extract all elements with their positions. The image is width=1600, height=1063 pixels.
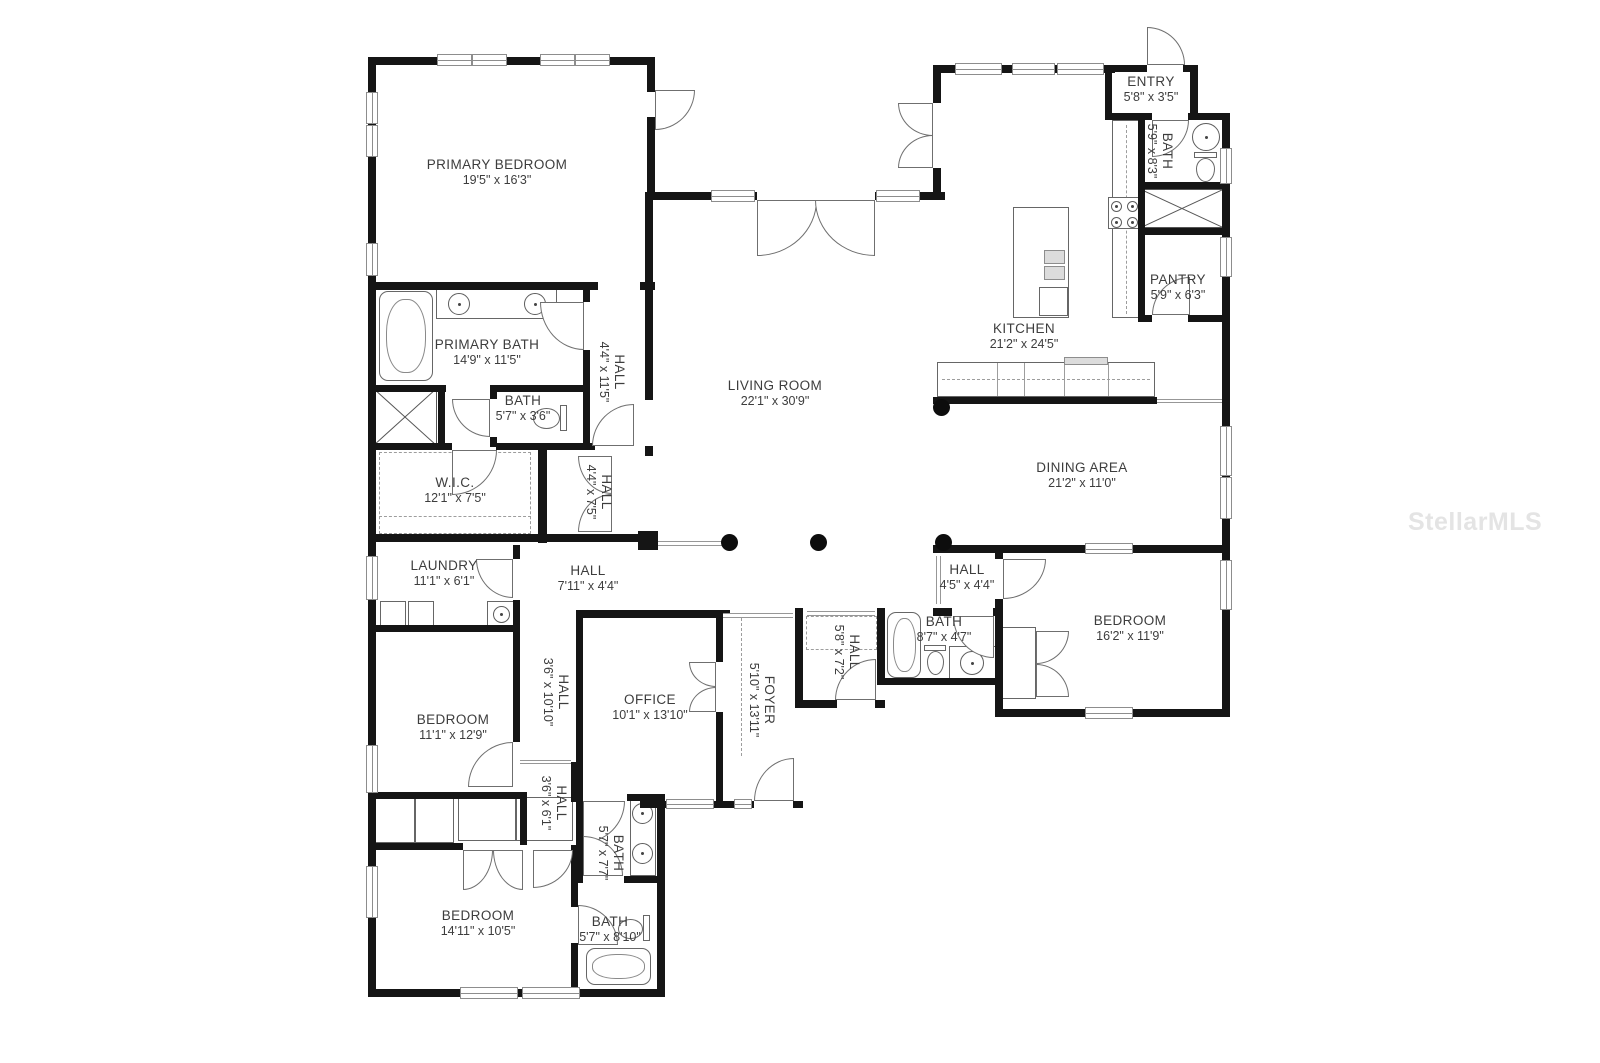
door-swing: [754, 758, 794, 801]
bathtub-bath5-basin: [893, 618, 916, 672]
room-dimensions: 4'4" x 7'5": [584, 465, 598, 520]
toilet-bowl-bath4: [1196, 158, 1215, 182]
window: [1220, 477, 1232, 519]
door-swing: [463, 850, 493, 890]
closet-foyer: [741, 618, 743, 756]
wall: [1188, 113, 1197, 120]
closet-bedroom2-a: [458, 797, 516, 841]
utility-sink: [493, 606, 510, 623]
room-dimensions: 11'1" x 6'1": [410, 574, 477, 588]
closet-bedroom1-b: [415, 797, 454, 843]
opening-threshold: [520, 760, 571, 764]
room-label-laundry: LAUNDRY11'1" x 6'1": [410, 558, 477, 588]
wall: [513, 610, 520, 742]
window: [460, 987, 518, 999]
room-label-hall-g: HALL4'5" x 4'4": [940, 562, 995, 592]
room-dimensions: 7'11" x 4'4": [558, 579, 619, 593]
opening-threshold: [723, 613, 793, 618]
room-label-bedroom-1: BEDROOM11'1" x 12'9": [417, 712, 490, 742]
kitchen-sink: [1064, 357, 1108, 365]
wall: [1188, 315, 1230, 322]
watermark: StellarMLS: [1408, 508, 1542, 537]
room-label-pantry: PANTRY5'9" x 6'3": [1150, 272, 1206, 302]
sink-bath2-2: [632, 843, 653, 864]
room-name: KITCHEN: [990, 321, 1059, 336]
room-name: BEDROOM: [441, 908, 516, 923]
room-label-hall-e: HALL5'8" x 7'2": [832, 625, 862, 680]
window: [1085, 707, 1133, 719]
window: [366, 556, 378, 600]
column: [933, 399, 950, 416]
window: [666, 799, 714, 809]
wall: [1138, 120, 1145, 322]
closet-bedroom3: [1002, 627, 1036, 699]
room-name: BATH: [579, 914, 641, 929]
wall: [645, 192, 653, 400]
wall: [368, 385, 446, 392]
door-swing: [540, 302, 584, 350]
room-dimensions: 11'1" x 12'9": [417, 728, 490, 742]
island-cabinet: [1039, 287, 1068, 316]
wall: [624, 876, 657, 883]
room-name: HALL: [612, 342, 627, 403]
room-name: HALL: [554, 776, 569, 831]
wall: [583, 282, 590, 302]
door-swing: [1036, 631, 1069, 664]
room-name: HALL: [558, 563, 619, 578]
wall: [520, 792, 527, 845]
wall: [716, 610, 723, 662]
window: [366, 745, 378, 793]
wall: [793, 801, 803, 808]
room-name: BATH: [611, 826, 626, 881]
room-label-bath-3: BATH5'7" x 8'10": [579, 914, 641, 944]
room-label-hall-c: HALL7'11" x 4'4": [558, 563, 619, 593]
wall: [368, 443, 452, 450]
room-dimensions: 8'7" x 4'7": [917, 630, 972, 644]
room-dimensions: 4'5" x 4'4": [940, 578, 995, 592]
room-dimensions: 5'8" x 3'5": [1124, 90, 1179, 104]
toilet-tank-hall-bath: [560, 405, 567, 431]
wall: [1190, 65, 1198, 120]
wall: [647, 57, 655, 92]
window: [437, 54, 472, 66]
wall: [1138, 315, 1152, 322]
counter-dash: [942, 379, 1150, 381]
wall: [368, 792, 520, 799]
window: [366, 243, 378, 276]
wall: [438, 385, 445, 447]
wall: [576, 610, 730, 618]
door-swing: [468, 742, 513, 787]
sink-bath4: [1192, 123, 1220, 151]
room-dimensions: 14'9" x 11'5": [435, 353, 540, 367]
door-swing: [1147, 27, 1185, 65]
door-swing: [592, 404, 634, 446]
column: [721, 534, 738, 551]
bathtub-primary-basin: [386, 299, 426, 373]
room-label-dining-area: DINING AREA21'2" x 11'0": [1036, 460, 1127, 490]
cabinet-divider: [1108, 363, 1109, 396]
wall: [795, 608, 803, 708]
door-swing: [757, 200, 817, 256]
room-dimensions: 10'1" x 13'10": [612, 708, 688, 722]
wall: [513, 545, 520, 559]
window: [1220, 237, 1232, 277]
room-dimensions: 19'5" x 16'3": [427, 173, 568, 187]
wall: [877, 678, 1003, 685]
room-name: W.I.C.: [424, 475, 486, 490]
window: [955, 63, 1002, 75]
wall: [716, 712, 723, 808]
wall: [368, 534, 658, 542]
window: [1220, 148, 1232, 184]
room-name: BATH: [917, 614, 972, 629]
cabinet-divider: [1064, 363, 1065, 396]
opening-threshold: [658, 541, 728, 546]
wall: [933, 168, 941, 200]
room-label-bedroom-2: BEDROOM14'11" x 10'5": [441, 908, 516, 938]
wic-shelf-line: [379, 516, 531, 518]
room-label-kitchen: KITCHEN21'2" x 24'5": [990, 321, 1059, 351]
room-name: BEDROOM: [1094, 613, 1167, 628]
wall: [368, 625, 520, 632]
wall: [627, 794, 657, 801]
room-dimensions: 5'7" x 8'10": [579, 930, 641, 944]
room-name: OFFICE: [612, 692, 688, 707]
window: [1012, 63, 1055, 75]
wall: [1222, 113, 1230, 717]
room-label-bath-4: BATH5'9" x 8'3": [1145, 124, 1175, 179]
window: [1220, 560, 1232, 610]
room-name: HALL: [940, 562, 995, 577]
opening-threshold: [1157, 399, 1222, 403]
room-name: HALL: [556, 658, 571, 727]
column: [810, 534, 827, 551]
wall: [993, 608, 1003, 616]
burner: [1111, 201, 1122, 212]
cabinet-divider: [997, 363, 998, 396]
wall: [368, 57, 376, 997]
window: [540, 54, 575, 66]
opening-threshold: [807, 611, 875, 616]
door-swing: [533, 850, 573, 888]
room-label-office: OFFICE10'1" x 13'10": [612, 692, 688, 722]
wall: [368, 843, 463, 850]
wall: [583, 350, 590, 450]
island-sink-a: [1044, 250, 1065, 264]
wall: [571, 762, 578, 802]
burner: [1127, 217, 1138, 228]
room-dimensions: 21'2" x 11'0": [1036, 476, 1127, 490]
column: [935, 534, 952, 551]
wall: [647, 117, 655, 197]
room-dimensions: 14'11" x 10'5": [441, 924, 516, 938]
wall: [490, 385, 588, 392]
wall: [877, 608, 885, 685]
room-name: BATH: [496, 393, 551, 408]
room-name: LIVING ROOM: [728, 378, 822, 393]
toilet-bowl-bath5: [927, 651, 944, 675]
window: [876, 190, 920, 202]
door-swing: [898, 135, 933, 168]
cabinet-divider: [1024, 363, 1025, 396]
wall: [803, 700, 837, 708]
burner: [1111, 217, 1122, 228]
utility-closet: [1141, 189, 1223, 228]
window: [366, 866, 378, 918]
window: [522, 987, 580, 999]
door-swing: [898, 103, 933, 136]
room-label-bedroom-3: BEDROOM16'2" x 11'9": [1094, 613, 1167, 643]
room-label-living-room: LIVING ROOM22'1" x 30'9": [728, 378, 822, 408]
wall: [875, 700, 885, 708]
window: [575, 54, 610, 66]
room-dimensions: 22'1" x 30'9": [728, 394, 822, 408]
wall: [368, 282, 598, 290]
door-swing: [1036, 664, 1069, 697]
door-swing: [655, 90, 695, 130]
room-dimensions: 5'10" x 13'11": [747, 663, 761, 738]
room-label-bath-hall: BATH5'7" x 3'6": [496, 393, 551, 423]
room-label-hall-d: HALL3'6" x 10'10": [541, 658, 571, 727]
room-dimensions: 3'6" x 10'10": [541, 658, 555, 727]
door-swing: [452, 399, 490, 437]
wall: [576, 801, 583, 881]
door-swing: [689, 662, 716, 687]
door-swing: [689, 687, 716, 712]
room-label-primary-bedroom: PRIMARY BEDROOM19'5" x 16'3": [427, 157, 568, 187]
room-dimensions: 21'2" x 24'5": [990, 337, 1059, 351]
wall: [1105, 113, 1152, 120]
wall: [1138, 228, 1230, 235]
window: [734, 799, 752, 809]
door-swing: [815, 200, 875, 256]
window: [366, 92, 378, 124]
shower-primary: [373, 388, 437, 446]
room-dimensions: 3'6" x 6'1": [539, 776, 553, 831]
room-name: BEDROOM: [417, 712, 490, 727]
window: [1220, 426, 1232, 476]
bathtub-bath3-basin: [592, 954, 645, 979]
room-dimensions: 5'7" x 7'7": [596, 826, 610, 881]
room-label-bath-2: BATH5'7" x 7'7": [596, 826, 626, 881]
room-label-primary-bath: PRIMARY BATH14'9" x 11'5": [435, 337, 540, 367]
wall: [995, 599, 1003, 717]
room-dimensions: 16'2" x 11'9": [1094, 629, 1167, 643]
wall: [933, 397, 1157, 404]
door-swing: [493, 850, 523, 890]
window: [1085, 543, 1133, 554]
wall: [645, 446, 653, 456]
room-label-bath-5: BATH8'7" x 4'7": [917, 614, 972, 644]
room-name: BATH: [1160, 124, 1175, 179]
door-swing: [1003, 559, 1046, 599]
closet-bedroom1-a: [374, 797, 415, 843]
window: [1057, 63, 1104, 75]
window: [366, 125, 378, 157]
wall: [538, 443, 547, 543]
room-name: LAUNDRY: [410, 558, 477, 573]
floor-plan: StellarMLS: [0, 0, 1600, 1063]
wall: [933, 545, 1230, 553]
wall: [1105, 65, 1112, 120]
wall: [368, 57, 655, 65]
window: [472, 54, 507, 66]
room-name: PRIMARY BATH: [435, 337, 540, 352]
room-dimensions: 5'9" x 8'3": [1145, 124, 1159, 179]
window: [711, 190, 755, 202]
door-swing: [476, 559, 513, 598]
room-dimensions: 12'1" x 7'5": [424, 491, 486, 505]
room-name: PRIMARY BEDROOM: [427, 157, 568, 172]
room-dimensions: 4'4" x 11'5": [597, 342, 611, 403]
toilet-tank-bath3: [643, 915, 650, 941]
wall: [657, 794, 665, 997]
room-dimensions: 5'7" x 3'6": [496, 409, 551, 423]
room-name: DINING AREA: [1036, 460, 1127, 475]
room-label-hall-a: HALL4'4" x 11'5": [597, 342, 627, 403]
room-name: HALL: [599, 465, 614, 520]
room-label-hall-b: HALL4'4" x 7'5": [584, 465, 614, 520]
room-label-entry: ENTRY5'8" x 3'5": [1124, 74, 1179, 104]
room-name: FOYER: [762, 663, 777, 738]
room-dimensions: 5'8" x 7'2": [832, 625, 846, 680]
room-dimensions: 5'9" x 6'3": [1150, 288, 1206, 302]
room-name: HALL: [847, 625, 862, 680]
sink-primary-1: [448, 293, 470, 315]
room-label-foyer: FOYER5'10" x 13'11": [747, 663, 777, 738]
room-name: PANTRY: [1150, 272, 1206, 287]
room-label-hall-f: HALL3'6" x 6'1": [539, 776, 569, 831]
island-sink-b: [1044, 266, 1065, 280]
burner: [1127, 201, 1138, 212]
wall: [1138, 182, 1230, 189]
room-label-wic: W.I.C.12'1" x 7'5": [424, 475, 486, 505]
room-name: ENTRY: [1124, 74, 1179, 89]
